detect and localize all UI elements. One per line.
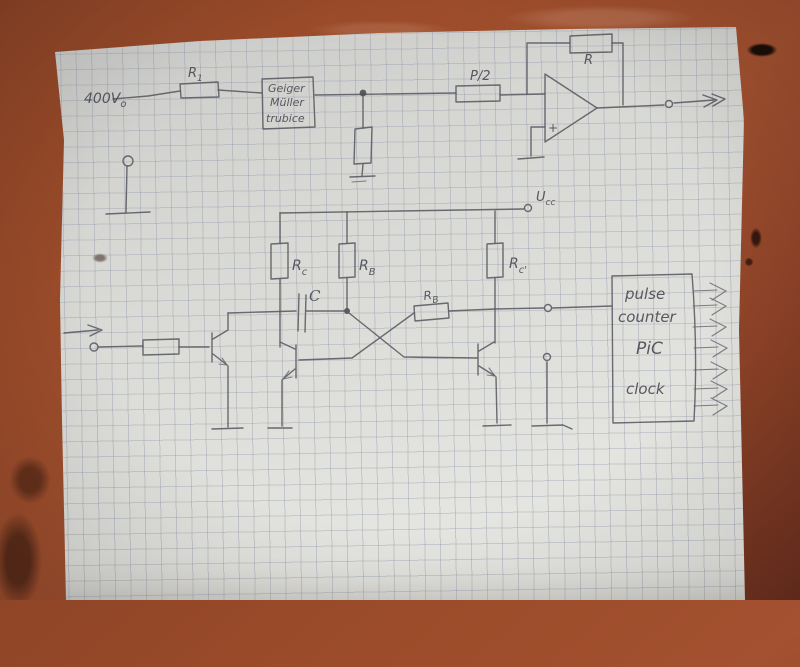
opamp: + [545,74,597,142]
terminal [544,354,551,361]
potentiometer-p2-label: P/2 [470,69,491,84]
hv-supply-label: 400Vo [84,91,126,110]
ground-symbol [212,428,243,429]
resistor-rc-left-label: Rc [292,258,308,278]
pic-box-line3: PiC [636,339,663,359]
geiger-box-line2: Müller [270,96,305,109]
schematic-drawing: 400Vo R1 Geiger Müller trubice P/2 R + [0,0,800,600]
resistor-r1-label: R1 [188,66,203,84]
ucc-label: Ucc [536,190,555,208]
signal-wire-top [315,90,456,97]
ucc-rail [280,205,532,214]
pic-box-line4: clock [626,380,666,398]
ground-symbol [483,425,511,426]
input-terminal [90,343,98,351]
resistor-rb-left [339,212,355,314]
hv-supply-wire [113,91,180,99]
resistor-rc-right-label: Rc' [509,256,527,276]
geiger-box-line1: Geiger [268,82,306,95]
resistor-rc-right [487,211,503,343]
input-arrow [64,325,102,336]
ground-symbol [532,425,572,429]
input-terminal-and-resistor [90,339,209,355]
ground-symbol [350,176,375,177]
geiger-box-line3: trubice [266,112,305,125]
flipflop-left-transistor [268,342,296,428]
potentiometer-p2 [456,85,545,102]
resistor-rc-left [271,213,288,347]
input-transistor [212,313,243,429]
pic-box-line1: pulse [624,285,665,303]
resistor-rb-cross [414,303,495,321]
ucc-terminal [525,205,532,212]
reference-probe-symbol [106,156,150,214]
feedback-resistor-label: R [584,53,593,68]
resistor-r1 [180,82,262,98]
load-resistor-to-ground [350,96,375,182]
opamp-plus-sign: + [548,121,558,135]
resistor-rb-left-label: RB [359,258,376,278]
lower-output-terminal-ground [532,354,572,430]
pic-pins [693,283,727,415]
capacitor-label: C [309,287,321,305]
coupling-capacitor [228,294,344,332]
opamp-output [597,94,725,108]
output-terminal [666,101,673,108]
flipflop-right-transistor [478,342,511,426]
flipflop-output-terminal [545,305,552,312]
output-arrow [674,100,714,103]
ground-symbol [518,157,544,159]
cross-coupling-wires [299,313,477,360]
opamp-noninverting-ground [518,127,545,159]
output-to-counter-wire [495,305,612,312]
pic-box-line2: counter [618,308,677,326]
